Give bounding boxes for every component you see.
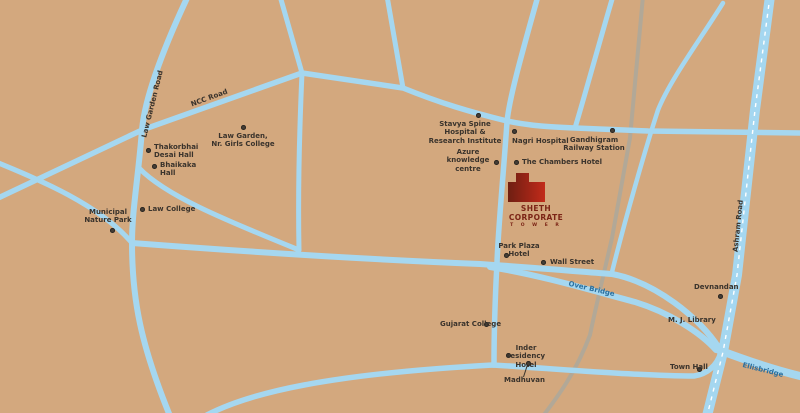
poi-dot-law-garden-college	[241, 125, 246, 130]
poi-label-law-garden-college: Law Garden, Nr. Girls College	[208, 132, 278, 149]
brand-subtitle: T O W E R	[498, 223, 574, 228]
poi-dot-gandhigram	[610, 128, 615, 133]
poi-dot-municipal-nature-park	[110, 228, 115, 233]
poi-dot-wall-street	[541, 260, 546, 265]
poi-label-bhaikaka-hall: Bhaikaka Hall	[160, 161, 196, 178]
poi-label-town-hall: Town Hall	[670, 363, 708, 371]
poi-dot-chambers-hotel	[514, 160, 519, 165]
poi-label-madhuvan: Madhuvan	[504, 376, 545, 384]
poi-label-devnandan: Devnandan	[694, 283, 739, 291]
poi-label-azure-knowledge-centre: Azure knowledge centre	[444, 148, 492, 173]
poi-label-gandhigram-railway-station: Gandhigram Railway Station	[558, 136, 630, 153]
brand-name: SHETH CORPORATE	[498, 204, 574, 222]
poi-label-stavya-spine-hospital: Stavya Spine Hospital & Research Institu…	[424, 120, 506, 145]
poi-label-gujarat-college: Gujarat College	[440, 320, 501, 328]
poi-dot-bhaikaka	[152, 164, 157, 169]
poi-dot-azure	[494, 160, 499, 165]
poi-label-chambers-hotel: The Chambers Hotel	[522, 158, 602, 166]
map-canvas	[0, 0, 800, 413]
poi-label-park-plaza-hotel: Park Plaza Hotel	[498, 242, 540, 259]
sheth-corporate-brand: SHETH CORPORATE T O W E R	[498, 204, 574, 228]
poi-label-law-college: Law College	[148, 205, 195, 213]
poi-dot-stavya-spine	[476, 113, 481, 118]
poi-dot-thakorbhai	[146, 148, 151, 153]
poi-label-wall-street: Wall Street	[550, 258, 594, 266]
poi-label-mj-library: M. J. Library	[668, 316, 716, 324]
poi-label-municipal-nature-park: Municipal Nature Park	[78, 208, 138, 225]
location-map: Law Garden Road NCC Road Over Bridge Ell…	[0, 0, 800, 413]
poi-dot-devnandan	[718, 294, 723, 299]
poi-label-thakorbhai-desai-hall: Thakorbhai Desai Hall	[154, 143, 198, 160]
poi-dot-nagri-hospital	[512, 129, 517, 134]
poi-dot-law-college	[140, 207, 145, 212]
